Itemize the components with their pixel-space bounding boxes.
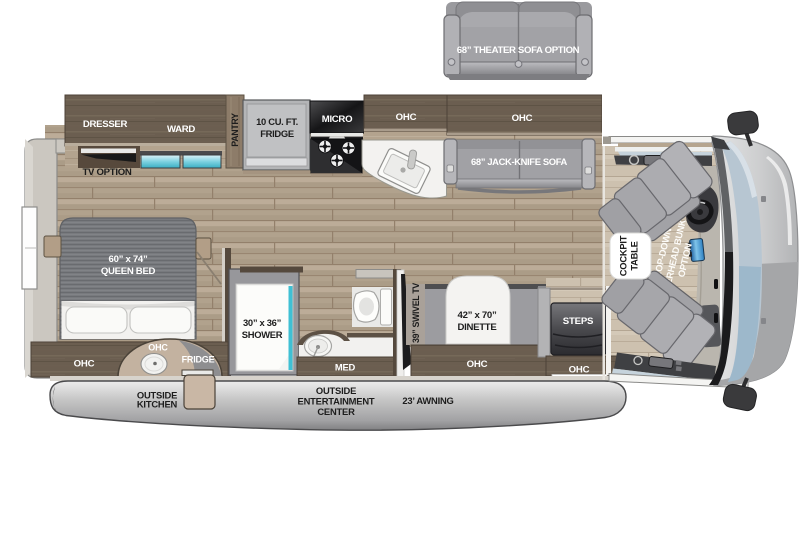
svg-text:CENTER: CENTER [317, 406, 355, 417]
svg-text:DRESSER: DRESSER [83, 119, 128, 130]
svg-text:KITCHEN: KITCHEN [137, 399, 178, 410]
svg-text:TABLE: TABLE [630, 241, 640, 270]
svg-text:30” x 36”: 30” x 36” [243, 317, 281, 328]
svg-text:OUTSIDE: OUTSIDE [316, 385, 356, 396]
svg-text:PANTRY: PANTRY [230, 113, 240, 147]
svg-text:OHC: OHC [74, 359, 95, 370]
svg-text:10 CU. FT.: 10 CU. FT. [256, 116, 298, 127]
svg-text:QUEEN BED: QUEEN BED [101, 266, 156, 277]
svg-text:23’ AWNING: 23’ AWNING [402, 395, 453, 406]
svg-text:FRIDGE: FRIDGE [182, 355, 215, 365]
svg-text:FRIDGE: FRIDGE [260, 128, 294, 139]
svg-text:MED: MED [335, 362, 356, 373]
svg-text:68” THEATER SOFA OPTION: 68” THEATER SOFA OPTION [457, 45, 580, 56]
svg-text:OHC: OHC [396, 112, 417, 123]
svg-text:MICRO: MICRO [322, 114, 353, 125]
svg-text:SHOWER: SHOWER [242, 329, 283, 340]
svg-text:60” x 74”: 60” x 74” [109, 254, 148, 265]
svg-text:OHC: OHC [569, 365, 590, 376]
svg-text:OHC: OHC [512, 113, 533, 124]
svg-text:OHC: OHC [148, 343, 168, 353]
svg-text:COCKPIT: COCKPIT [619, 235, 629, 276]
svg-text:STEPS: STEPS [563, 316, 594, 327]
svg-text:39” SWIVEL TV: 39” SWIVEL TV [411, 283, 421, 343]
svg-text:42” x 70”: 42” x 70” [458, 310, 497, 321]
svg-text:WARD: WARD [167, 124, 195, 135]
svg-text:TV OPTION: TV OPTION [82, 167, 131, 178]
svg-text:ENTERTAINMENT: ENTERTAINMENT [298, 396, 375, 407]
svg-text:DINETTE: DINETTE [458, 322, 498, 333]
svg-text:68” JACK-KNIFE SOFA: 68” JACK-KNIFE SOFA [471, 156, 568, 167]
svg-text:OHC: OHC [467, 359, 488, 370]
